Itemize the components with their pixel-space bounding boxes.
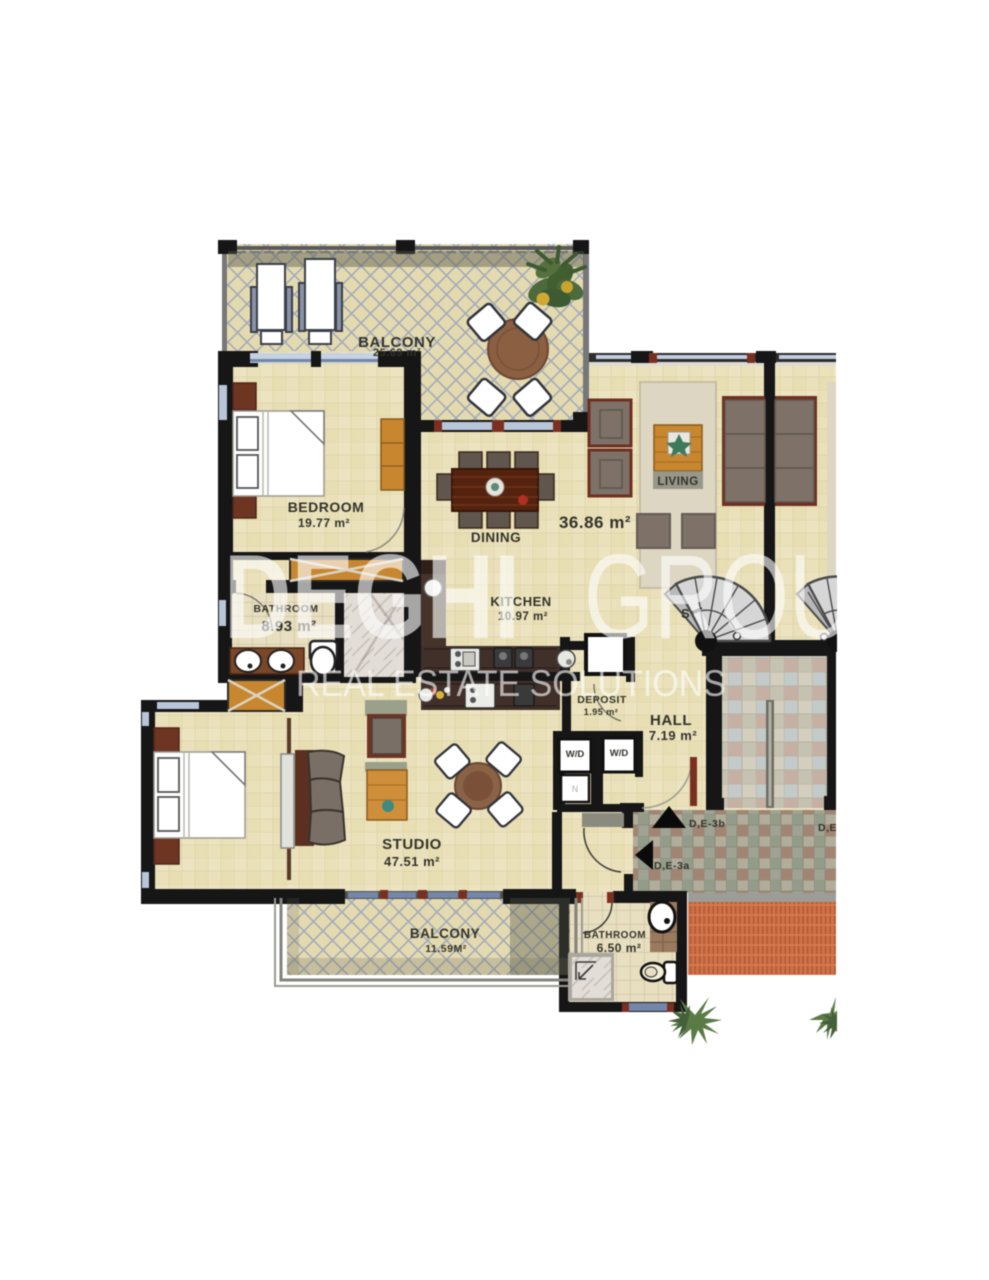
svg-text:D,E-3b: D,E-3b <box>689 818 725 830</box>
svg-text:BEDROOM: BEDROOM <box>288 499 365 515</box>
svg-text:11.59M²: 11.59M² <box>425 943 466 955</box>
svg-text:25.69 m²: 25.69 m² <box>373 347 421 359</box>
svg-text:DEGHI: DEGHI <box>224 530 520 664</box>
svg-text:47.51 m²: 47.51 m² <box>384 854 440 869</box>
svg-text:D,E: D,E <box>818 822 837 834</box>
svg-text:REAL ESTATE SOLUTIONS: REAL ESTATE SOLUTIONS <box>296 663 726 704</box>
svg-text:HALL: HALL <box>650 712 692 729</box>
svg-text:BATHROOM: BATHROOM <box>584 930 646 941</box>
svg-text:7.19 m²: 7.19 m² <box>649 728 697 743</box>
svg-text:W/D: W/D <box>566 749 585 760</box>
svg-text:BALCONY: BALCONY <box>410 926 480 941</box>
svg-text:6.50 m²: 6.50 m² <box>597 941 642 955</box>
svg-text:W/D: W/D <box>610 748 629 759</box>
svg-text:1.95 m²: 1.95 m² <box>584 707 619 717</box>
svg-text:STUDIO: STUDIO <box>382 836 442 853</box>
svg-text:N: N <box>572 784 579 794</box>
svg-text:LIVING: LIVING <box>657 476 698 488</box>
svg-text:19.77 m²: 19.77 m² <box>298 516 350 530</box>
svg-text:D,E-3a: D,E-3a <box>654 860 690 872</box>
